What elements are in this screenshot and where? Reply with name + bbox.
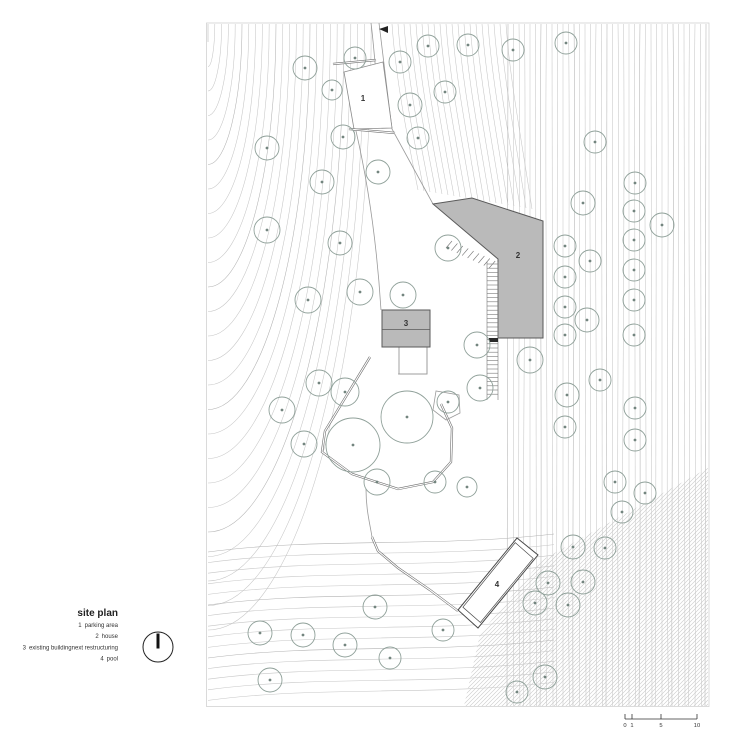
tree-symbol	[435, 235, 461, 261]
tree-symbol	[623, 229, 645, 251]
tree-symbol	[333, 633, 357, 657]
stairs-ladder	[487, 262, 498, 400]
tree-symbol	[467, 375, 493, 401]
parking-lower-wall-core	[349, 129, 395, 133]
tree-symbol	[248, 621, 272, 645]
scale-tick-label: 10	[694, 723, 700, 729]
tree-symbol	[258, 668, 282, 692]
tree-symbol	[432, 619, 454, 641]
tree-symbol	[322, 80, 342, 100]
tree-symbol	[326, 418, 380, 472]
page-title: site plan	[77, 608, 118, 619]
terrace-walls	[322, 357, 460, 489]
house-door-mark	[489, 338, 498, 342]
tree-symbol	[331, 125, 355, 149]
site-plan-page: 1234 site plan 1 parking area2 house3 ex…	[0, 0, 750, 752]
tree-symbol	[363, 595, 387, 619]
scale-tick-label: 0	[623, 723, 626, 729]
tree-symbol	[347, 279, 373, 305]
tree-symbol	[291, 623, 315, 647]
tree-symbol	[634, 482, 656, 504]
legend: 1 parking area2 house3 existing building…	[23, 623, 119, 663]
tree-symbol	[575, 308, 599, 332]
tree-symbol	[381, 391, 433, 443]
scale-tick-label: 1	[630, 723, 633, 729]
tree-symbol	[623, 200, 645, 222]
tree-symbol	[555, 32, 577, 54]
legend-item-4: 4 pool	[100, 657, 118, 663]
tree-symbol	[331, 378, 359, 406]
tree-symbol	[379, 647, 401, 669]
tree-symbol	[366, 160, 390, 184]
parking-upper-wall-core	[333, 60, 376, 64]
tree-symbol	[269, 397, 295, 423]
tree-symbol	[457, 477, 477, 497]
tree-symbol	[623, 259, 645, 281]
tree-symbol	[555, 383, 579, 407]
tree-symbol	[293, 56, 317, 80]
tree-symbol	[437, 391, 459, 413]
tree-symbol	[295, 287, 321, 313]
tree-symbol	[584, 131, 606, 153]
building-label-3: 3	[404, 319, 409, 328]
building-label-1: 1	[361, 94, 366, 103]
tree-symbol	[457, 34, 479, 56]
tree-symbol	[589, 369, 611, 391]
building-label-4: 4	[495, 580, 500, 589]
tree-symbol	[502, 39, 524, 61]
building-label-2: 2	[516, 251, 521, 260]
tree-symbol	[623, 289, 645, 311]
legend-item-3: 3 existing buildingnext restructuring	[23, 645, 118, 651]
tree-symbol	[390, 282, 416, 308]
tree-symbol	[464, 332, 490, 358]
tree-symbol	[434, 81, 456, 103]
legend-item-2: 2 house	[95, 634, 118, 640]
annex-shape	[399, 347, 427, 374]
existing-building-shape	[382, 310, 430, 347]
tree-symbol	[364, 469, 390, 495]
tree-symbol	[344, 47, 366, 69]
tree-symbol	[328, 231, 352, 255]
tree-symbol	[623, 324, 645, 346]
site-plan-drawing: 1234 site plan 1 parking area2 house3 ex…	[0, 0, 750, 752]
tree-symbol	[398, 93, 422, 117]
scale-bar: 01510	[623, 714, 700, 729]
scale-tick-label: 5	[659, 723, 662, 729]
legend-item-1: 1 parking area	[78, 623, 118, 629]
path-to-pool	[366, 489, 372, 537]
north-arrow-icon	[143, 632, 173, 662]
tree-symbol	[554, 416, 576, 438]
tree-symbol	[306, 370, 332, 396]
path-to-building3	[356, 131, 381, 310]
tree-symbol	[291, 431, 317, 457]
